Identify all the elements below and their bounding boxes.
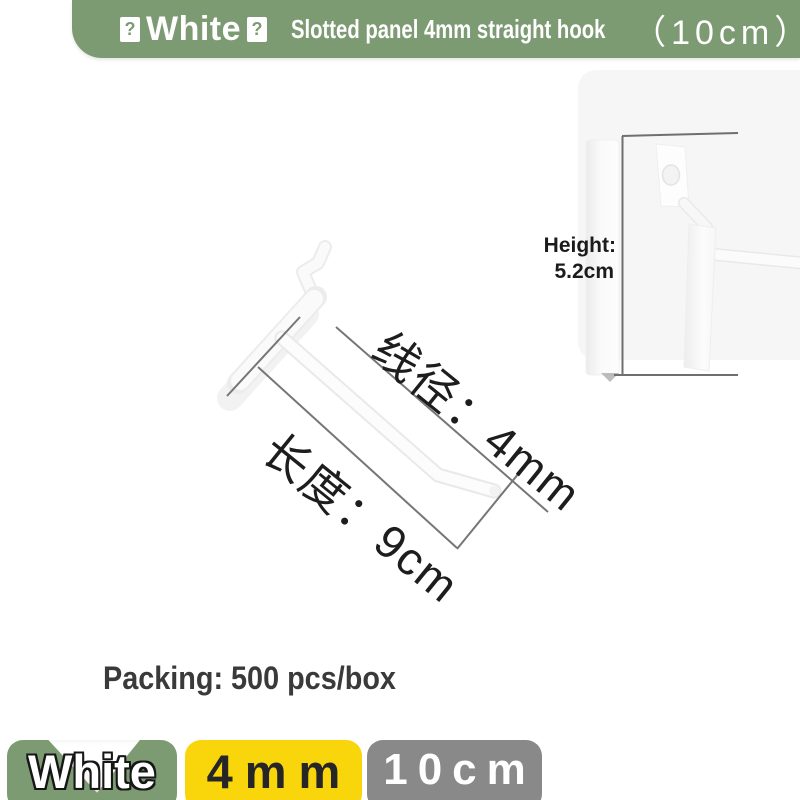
packing-info: Packing: 500 pcs/box — [103, 660, 396, 697]
panel-slab — [586, 140, 619, 375]
badge-size-10cm: 10cm — [367, 740, 542, 800]
badge-wire-label: 4mm — [207, 748, 353, 795]
dimension-tick-start — [227, 317, 300, 396]
hook-top-tab — [303, 247, 325, 293]
badge-size-label: 10cm — [383, 748, 536, 792]
length-label: 长度：9cm — [253, 423, 470, 613]
badge-color-label: White — [28, 748, 156, 795]
bracket-hole — [663, 165, 680, 185]
height-label: Height: — [544, 234, 616, 257]
product-image: ? White ? Slotted panel 4mm straight hoo… — [0, 0, 800, 800]
badge-wire-4mm: 4mm — [185, 740, 362, 800]
height-value: 5.2cm — [554, 260, 614, 283]
hook-rod-tip — [489, 486, 499, 496]
badge-color-white: White — [7, 740, 177, 800]
